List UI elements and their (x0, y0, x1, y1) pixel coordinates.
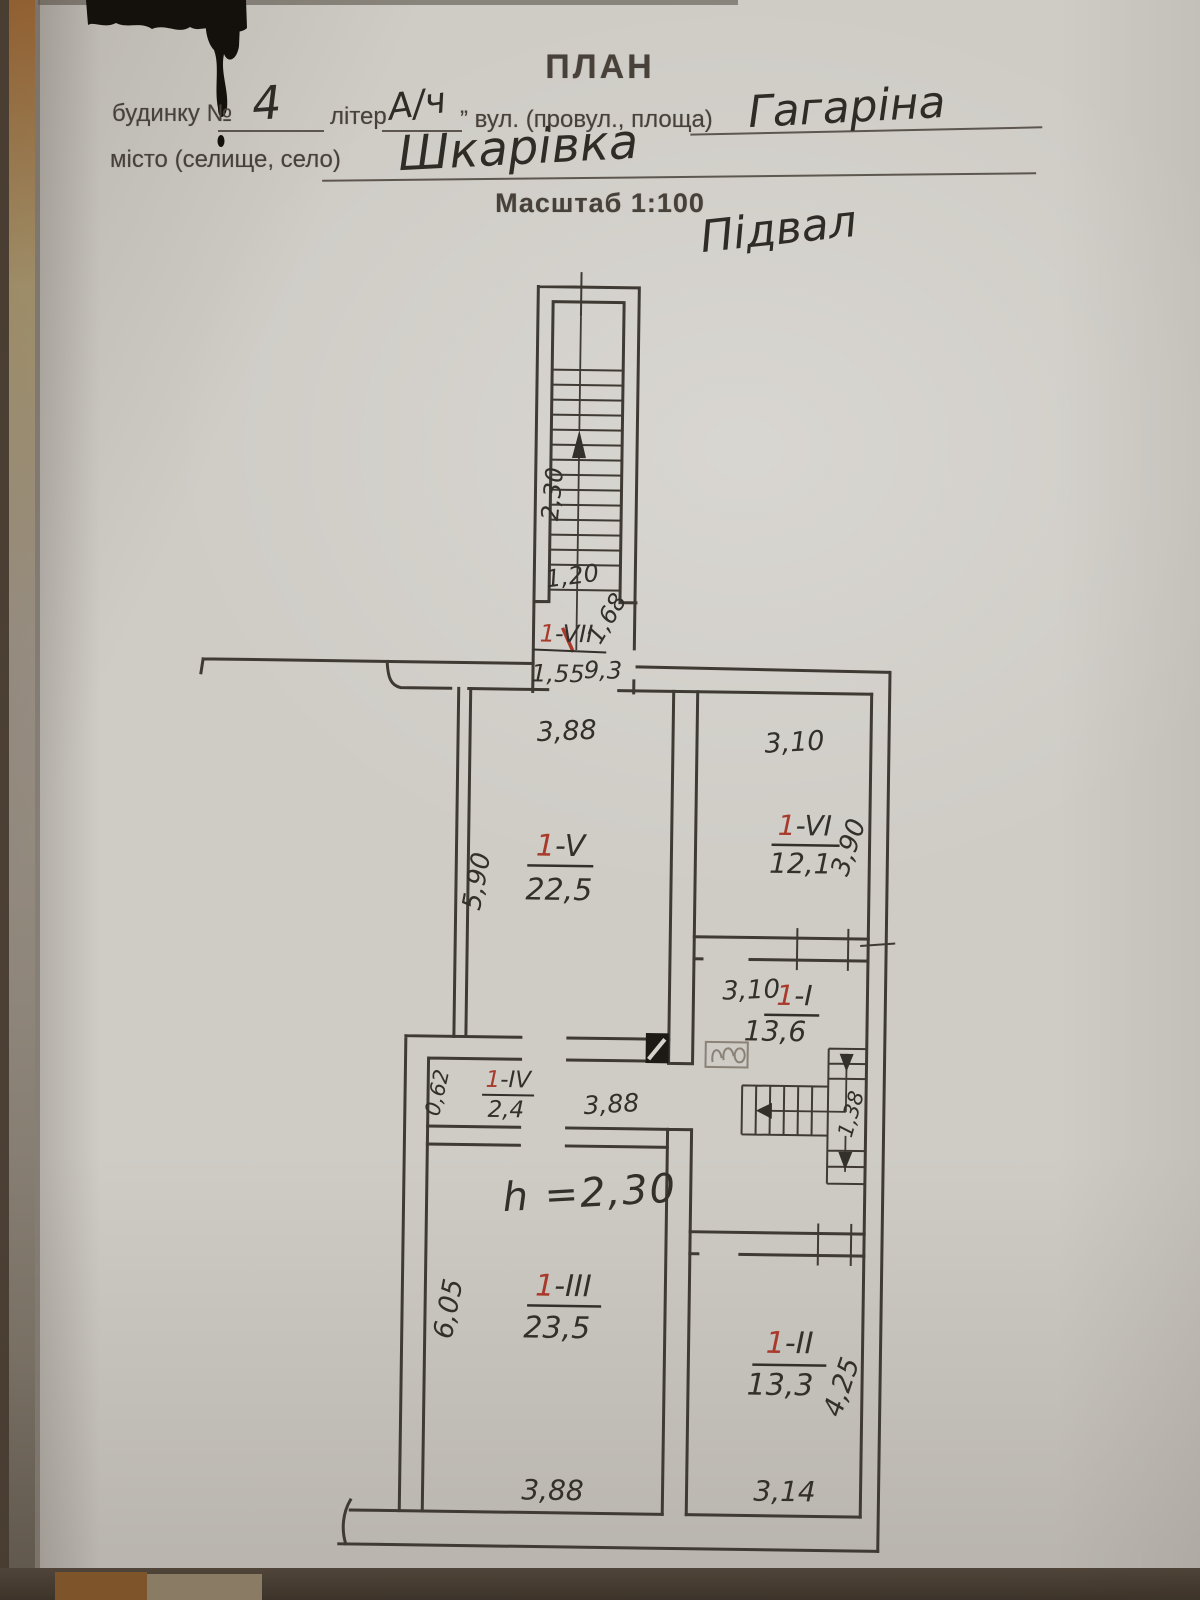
room-vi-suffix: -VI (795, 809, 832, 843)
room-vi-top-dim: 3,10 (764, 725, 826, 759)
room-iii-area: 23,5 (523, 1310, 590, 1346)
room-vii-no: 1 (540, 620, 556, 648)
room-vi-area: 12,1 (769, 847, 832, 881)
corridor-label: 1-IV (485, 1067, 533, 1094)
room-vi-label: 1-VI (778, 809, 833, 843)
room-v-no: 1 (536, 829, 556, 864)
corridor-width-dim: 3,88 (583, 1088, 640, 1120)
room-iii-height-note: h =2,30 (501, 1165, 678, 1221)
corridor-suffix: -IV (500, 1067, 533, 1093)
room-v-top-dim: 3,88 (536, 715, 597, 748)
corridor-area: 2,4 (487, 1097, 524, 1124)
flue-icon (646, 1033, 669, 1063)
room-ii-no: 1 (766, 1326, 786, 1361)
entry-stair-width: 1,20 (544, 559, 601, 593)
room-vii-underline (533, 649, 606, 652)
room-v-area: 22,5 (525, 872, 592, 908)
room-vi-no: 1 (778, 809, 796, 842)
plan-labels: 2,30 1,20 1-VII 1,68 1,55 9,3 3,88 5,90 … (415, 464, 879, 1511)
room-ii-right-dim: 4,25 (818, 1354, 867, 1421)
room-i-label: 1-I (776, 979, 813, 1013)
room-ii-underline (752, 1365, 826, 1366)
room-i-suffix: -I (794, 979, 813, 1012)
room-ii-label: 1-II (766, 1326, 814, 1362)
room-v-suffix: -V (555, 829, 588, 864)
room-vi-underline (772, 845, 840, 846)
vent-shaft-symbol (705, 1042, 747, 1068)
corridor-no: 1 (485, 1067, 500, 1093)
corridor-left-dim: 0,62 (420, 1067, 454, 1118)
room-v-label: 1-V (536, 829, 588, 865)
stair-left-arrow-icon (756, 1103, 772, 1119)
vestibule-width: 1,55 (531, 659, 585, 688)
room-ii-area: 13,3 (746, 1367, 813, 1403)
room-iii-no: 1 (535, 1269, 555, 1304)
room-i-top-dim: 3,10 (722, 974, 781, 1006)
room-iii-label: 1-III (535, 1269, 592, 1305)
room-iii-left-dim: 6,05 (428, 1276, 470, 1341)
vestibule-area: 9,3 (584, 656, 623, 685)
room-i-area: 13,6 (744, 1014, 807, 1048)
corridor-underline (482, 1095, 534, 1096)
entry-stair-length: 2,30 (536, 466, 569, 522)
scanned-plan-page: ПЛАН будинку № 4 літер А/ч ” вул. (прову… (0, 0, 1200, 1600)
vestibule-depth: 1,68 (581, 588, 632, 648)
room-iii-bottom-dim: 3,88 (521, 1473, 584, 1507)
room-i-no: 1 (776, 979, 794, 1012)
room-ii-suffix: -II (785, 1326, 814, 1361)
room-vi-right-dim: 3,90 (825, 815, 872, 879)
floor-plan-svg: 2,30 1,20 1-VII 1,68 1,55 9,3 3,88 5,90 … (0, 0, 1200, 1600)
inner-stair-width: 1,38 (833, 1088, 869, 1140)
room-v-left-dim: 5,90 (457, 850, 497, 912)
room-iii-suffix: -III (554, 1269, 592, 1305)
room-ii-bottom-dim: 3,14 (753, 1475, 816, 1509)
room-v-underline (527, 865, 593, 866)
room-iii-underline (527, 1305, 601, 1306)
